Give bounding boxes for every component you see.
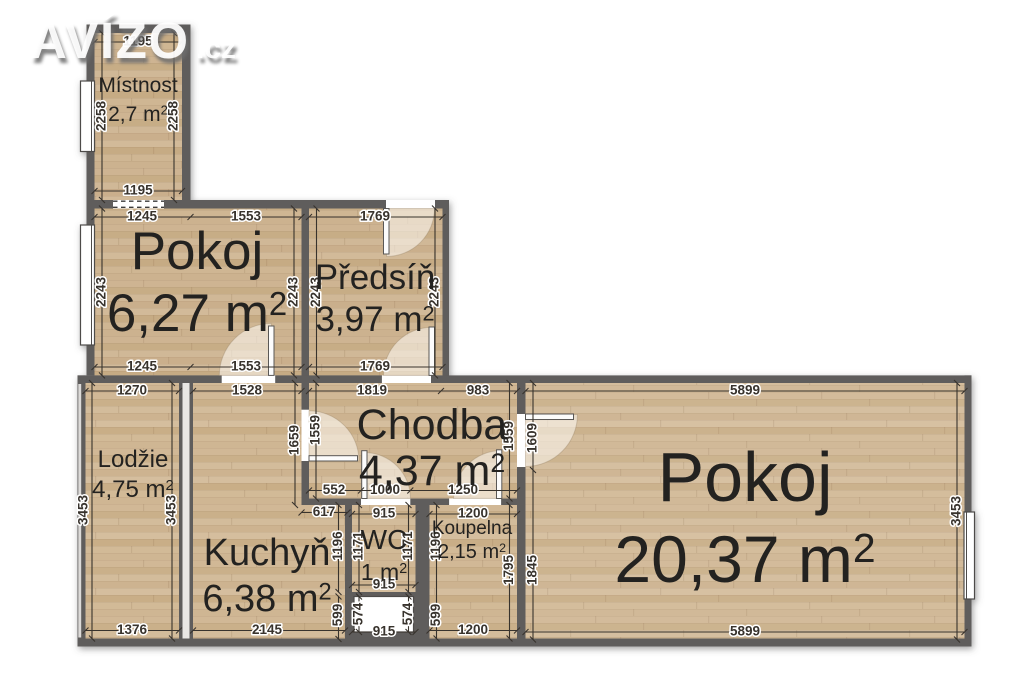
svg-text:1769: 1769 [360,209,390,224]
svg-text:6,38 m2: 6,38 m2 [202,578,331,620]
svg-text:WC: WC [361,524,408,555]
svg-text:Chodba: Chodba [357,401,508,449]
svg-text:2243: 2243 [286,276,301,307]
svg-text:.cz: .cz [196,32,236,65]
svg-text:1196: 1196 [330,531,345,561]
svg-text:1376: 1376 [117,622,148,637]
svg-text:5899: 5899 [730,383,760,398]
svg-text:Pokoj: Pokoj [131,222,264,281]
svg-text:4,75 m2: 4,75 m2 [92,476,174,503]
svg-text:Kuchyň: Kuchyň [204,532,331,574]
svg-text:1559: 1559 [308,415,323,445]
svg-text:983: 983 [467,383,490,398]
svg-text:2,7 m2: 2,7 m2 [108,103,168,126]
svg-text:1270: 1270 [117,383,147,398]
svg-text:1200: 1200 [458,622,488,637]
svg-text:1245: 1245 [127,359,158,374]
svg-text:Pokoj: Pokoj [657,438,832,516]
svg-text:2,15 m2: 2,15 m2 [438,541,506,563]
svg-text:5899: 5899 [730,624,760,639]
svg-text:1819: 1819 [357,383,387,398]
svg-text:1769: 1769 [360,359,390,374]
svg-text:3453: 3453 [76,494,91,525]
svg-text:2145: 2145 [252,622,283,637]
svg-text:599: 599 [330,604,345,627]
svg-text:3453: 3453 [164,494,179,525]
svg-text:Předsíň: Předsíň [315,258,436,297]
svg-text:3,97 m2: 3,97 m2 [315,300,434,339]
svg-text:1659: 1659 [287,425,302,455]
svg-text:2258: 2258 [94,100,109,131]
svg-text:Koupelna: Koupelna [432,518,513,539]
svg-text:Lodžie: Lodžie [98,446,169,473]
svg-text:20,37 m2: 20,37 m2 [614,522,875,596]
svg-text:1795: 1795 [501,554,516,585]
svg-text:1195: 1195 [123,183,153,198]
svg-text:1609: 1609 [525,423,540,453]
svg-text:6,27 m2: 6,27 m2 [107,284,287,343]
svg-text:Místnost: Místnost [98,74,178,97]
svg-text:574: 574 [351,602,366,625]
svg-text:552: 552 [323,482,346,497]
svg-text:1553: 1553 [231,359,262,374]
svg-text:574: 574 [400,602,415,625]
svg-text:1845: 1845 [525,554,540,585]
svg-text:1528: 1528 [232,383,263,398]
svg-text:915: 915 [373,506,396,521]
svg-text:617: 617 [313,504,336,519]
svg-text:AVÍZO: AVÍZO [30,12,190,69]
svg-text:599: 599 [428,604,443,627]
svg-text:4,37 m2: 4,37 m2 [359,447,505,495]
svg-text:3453: 3453 [949,495,964,526]
svg-text:915: 915 [373,624,396,639]
